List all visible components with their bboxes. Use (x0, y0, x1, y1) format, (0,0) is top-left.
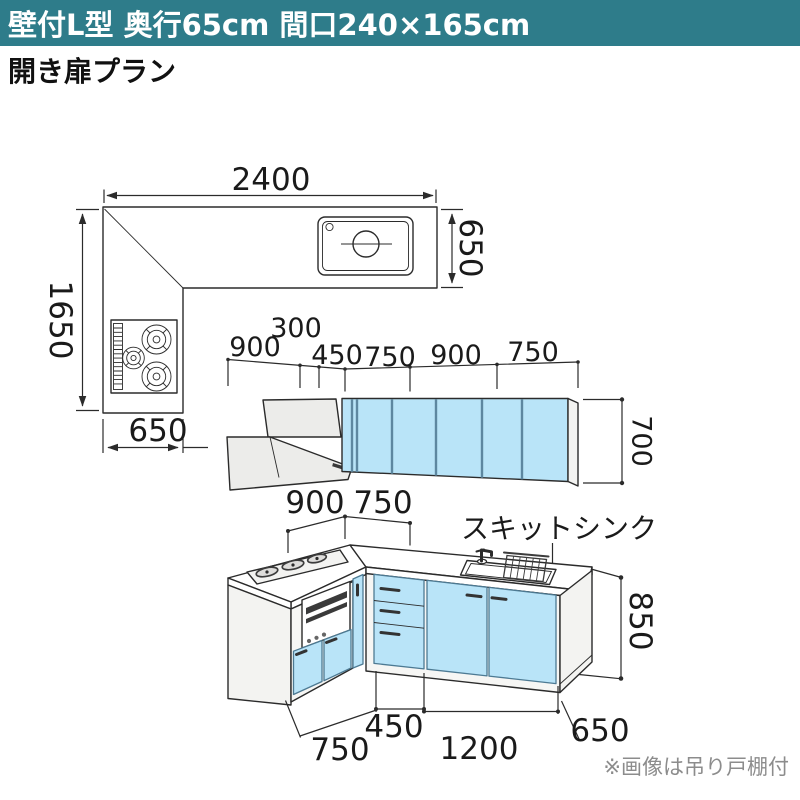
drawer-handle (381, 611, 399, 613)
dim-label: 750 (310, 732, 369, 768)
dim-plan-length-left: 1650 (42, 210, 99, 411)
dim-perspective-upper-widths: 900 750 (285, 485, 412, 553)
stove-plan (111, 320, 177, 393)
dim-label: 850 (622, 591, 658, 650)
cabinet-door (489, 587, 556, 683)
dim-label: 1200 (440, 731, 519, 767)
sink-plan (318, 217, 413, 275)
dim-label: 450 (364, 709, 423, 745)
wall-cabinets (342, 399, 578, 487)
perspective-view: 900 750 スキットシンク (228, 485, 658, 768)
wall-cabinet-side-panel (568, 399, 578, 487)
footnote: ※画像は吊り戸棚付 (603, 755, 789, 779)
dim-label: 2400 (232, 162, 311, 198)
dim-label: 650 (128, 413, 187, 449)
dim-label: 650 (452, 218, 488, 277)
dim-perspective-depth: 650 (562, 701, 630, 749)
range-hood (227, 437, 352, 490)
cabinet-door (427, 580, 487, 676)
dim-plan-width-top: 2400 (104, 162, 436, 203)
dim-label: 900 (285, 485, 344, 521)
corner-wall-cabinet (263, 399, 341, 437)
dim-label: 1650 (42, 281, 78, 360)
sink-label: スキットシンク (461, 512, 657, 545)
door-handle (492, 598, 506, 600)
dim-elevation-widths: 900 300 450 750 900 750 (226, 313, 580, 392)
drawer-handle (381, 589, 399, 591)
elevation-view: 900 300 450 750 900 750 700 (226, 313, 656, 490)
dim-label: 900 (430, 340, 482, 371)
dim-wall-cabinet-height: 700 (583, 397, 657, 485)
dim-label: 750 (364, 342, 416, 373)
drawer-handle (381, 633, 399, 635)
dim-label: 750 (507, 337, 559, 368)
dim-label: 700 (626, 415, 657, 467)
dim-plan-depth-bottom: 650 (103, 413, 208, 453)
dim-plan-depth-right: 650 (441, 210, 488, 288)
drawer-unit (374, 574, 424, 669)
dim-label: 750 (353, 485, 412, 521)
door-handle (467, 595, 481, 597)
dim-label: 650 (570, 713, 629, 749)
dim-label: 450 (311, 340, 363, 371)
kitchen-layout-drawing: 2400 1650 650 650 (0, 0, 800, 800)
